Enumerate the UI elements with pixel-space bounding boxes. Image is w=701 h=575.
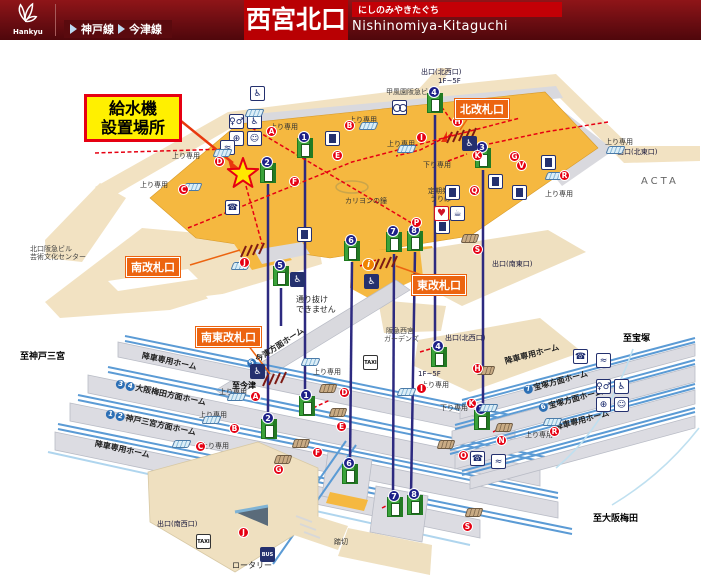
stair-letter-A: A [250, 391, 261, 402]
stair-letter-D: D [214, 156, 225, 167]
tm-icon [488, 174, 503, 189]
wheelchair-icon: ♿ [614, 379, 629, 394]
elevator-number: 7 [387, 225, 399, 237]
accpole-icon: ♿ [250, 86, 265, 101]
platform-label: 34大阪梅田方面ホーム [115, 378, 207, 408]
stair-letter-V: V [516, 160, 527, 171]
platform-name: 降車専用ホーム [504, 342, 561, 367]
map-label: 1F~5F [438, 77, 461, 85]
stair-letter-Q: Q [469, 185, 480, 196]
phone-icon: ☎ [470, 451, 485, 466]
widegate-icon: ♿ [462, 136, 477, 151]
elevator-number: 1 [298, 131, 310, 143]
baby-icon: ☺ [614, 397, 629, 412]
line-names: 神戸線 今津線 [64, 20, 172, 38]
map-label: 下り専用 [440, 403, 468, 413]
phone-icon: ☎ [225, 200, 240, 215]
station-title-romaji: Nishinomiya-Kitaguchi [352, 19, 562, 34]
gate-label-southeast: 南東改札口 [196, 327, 261, 347]
callout-line1: 給水機 [87, 99, 179, 118]
stairs-icon [319, 384, 338, 393]
info-icon: i [362, 258, 375, 271]
brand-name: Hankyu [13, 28, 43, 36]
esc-icon [212, 149, 232, 157]
elevator-number: 6 [343, 457, 355, 469]
map-label: 出口(南東口) [492, 259, 532, 269]
station-title-kana: にしのみやきたぐち [352, 2, 562, 17]
elevator-marker: 7 [386, 232, 402, 252]
elevator-marker: 1 [297, 138, 313, 158]
line-arrow-icon [70, 24, 77, 34]
elevator-marker: 1 [299, 396, 315, 416]
tm-icon [541, 155, 556, 170]
elevator-number: 8 [408, 488, 420, 500]
elevator-number: 6 [345, 234, 357, 246]
stairs-icon [292, 439, 311, 448]
elevator-marker: 6 [342, 464, 358, 484]
stairs-icon [465, 508, 484, 517]
esc-icon [226, 393, 246, 401]
map-label: 下り専用 [423, 160, 451, 170]
stairs-icon [437, 440, 456, 449]
stair-letter-C: C [178, 184, 189, 195]
stair-letter-E: E [336, 421, 347, 432]
platform-name: 大阪梅田方面ホーム [134, 382, 206, 408]
stair-letter-F: F [289, 176, 300, 187]
stair-letter-A: A [266, 126, 277, 137]
stair-letter-B: B [229, 423, 240, 434]
map-label: ACTA [641, 176, 679, 187]
stair-letter-J: J [238, 527, 249, 538]
esc-icon [201, 416, 221, 424]
stair-letter-B: B [344, 120, 355, 131]
esc-icon [605, 146, 625, 154]
map-label: 至宝塚 [623, 331, 650, 344]
esc-icon [396, 388, 416, 396]
stair-letter-J: J [239, 257, 250, 268]
elevator-number: 7 [388, 490, 400, 502]
stair-letter-C: C [195, 441, 206, 452]
platform-name: 今津方面ホーム [253, 325, 306, 365]
stairs-icon [461, 234, 480, 243]
stairs-icon [274, 455, 293, 464]
esc-icon [542, 418, 562, 426]
tm-icon [512, 185, 527, 200]
stair-letter-F: F [312, 447, 323, 458]
map-label: 出口(北西口) [445, 333, 485, 343]
elevator-number: 1 [300, 389, 312, 401]
elevator-marker: 6 [344, 241, 360, 261]
stair-letter-N: N [496, 435, 507, 446]
tm-icon [325, 131, 340, 146]
toilet-icon: ♀♂ [229, 114, 244, 129]
stair-letter-S: S [472, 244, 483, 255]
map-label: カリヨンの鐘 [345, 196, 387, 206]
bus-icon: BUS [260, 547, 275, 562]
stair-letter-E: E [332, 150, 343, 161]
taxi-icon: TAXI [363, 355, 378, 370]
map-label: 上り専用 [172, 151, 200, 161]
widegate-icon: ♿ [290, 272, 305, 287]
phone-icon: ☎ [573, 349, 588, 364]
platform-name: 降車専用ホーム [141, 350, 198, 372]
map-label: ガーデンズ [384, 334, 419, 344]
header-divider [55, 4, 56, 36]
elevator-marker: 5 [273, 266, 289, 286]
widegate-icon: ♿ [364, 274, 379, 289]
station-map-page: Hankyu 神戸線 今津線 西宮北口 にしのみやきたぐち Nishinomiy… [0, 0, 701, 575]
line-name-kobe: 神戸線 [81, 21, 114, 37]
map-label: 踏切 [334, 537, 348, 547]
stair-letter-R: R [549, 426, 560, 437]
elevator-number: 4 [428, 86, 440, 98]
map-overlay: 出口(北西口)1F~5F甲風園阪急ビル出口(北東口)ACTA北口阪急ビル芸術文化… [0, 0, 701, 575]
elevator-marker: 3 [474, 410, 490, 430]
map-label: 1F~5F [418, 370, 441, 378]
stair-letter-R: R [559, 170, 570, 181]
elevator-number: 5 [274, 259, 286, 271]
platform-label: 降車専用ホーム [141, 350, 198, 372]
baby-icon: ☺ [247, 131, 262, 146]
stairs-icon [495, 423, 514, 432]
map-label: 上り専用 [140, 180, 168, 190]
esc-icon [300, 358, 320, 366]
ostomate-icon: ⊕ [596, 397, 611, 412]
elevator-number: 2 [261, 156, 273, 168]
stair-letter-I: I [416, 132, 427, 143]
map-label: 出口(南西口) [157, 519, 197, 529]
stair-letter-O: O [458, 450, 469, 461]
stair-letter-S: S [462, 521, 473, 532]
stair-letter-G: G [273, 464, 284, 475]
esc-icon [171, 440, 191, 448]
stair-letter-I: I [416, 383, 427, 394]
gate-label-east: 東改札口 [412, 275, 466, 295]
elevator-number: 2 [262, 412, 274, 424]
map-label: 芸術文化センター [30, 252, 86, 262]
platform-name: 降車専用ホーム [94, 438, 151, 460]
header: Hankyu 神戸線 今津線 西宮北口 にしのみやきたぐち Nishinomiy… [0, 0, 701, 40]
gate-label-north: 北改札口 [455, 99, 509, 119]
elevator-marker: 7 [387, 497, 403, 517]
elevator-number: 4 [432, 340, 444, 352]
tm-icon [445, 185, 460, 200]
map-label: 至神戸三宮 [20, 349, 65, 362]
widegate-icon: ♿ [250, 364, 265, 379]
esc-icon [396, 145, 416, 153]
elevator-marker: 2 [261, 419, 277, 439]
elevator-marker: 8 [407, 231, 423, 251]
stair-letter-K: K [466, 398, 477, 409]
elevator-marker: 2 [260, 163, 276, 183]
station-title: 西宮北口 [244, 0, 348, 40]
tm-icon [297, 227, 312, 242]
map-label: 出口(北西口) [421, 67, 461, 77]
esc-icon [478, 404, 498, 412]
stair-letter-H: H [472, 363, 483, 374]
track-number: 1 [105, 409, 116, 420]
station-title-sub: にしのみやきたぐち Nishinomiya-Kitaguchi [352, 2, 562, 34]
water-dispenser-callout: 給水機 設置場所 [84, 94, 182, 142]
stairs-icon [329, 408, 348, 417]
elevator-marker: 4 [427, 93, 443, 113]
platform-label: 6宝塚方面ホーム [538, 386, 604, 414]
vend-icon: ☕ [450, 206, 465, 221]
platform-label: 12神戸三宮方面ホーム [105, 408, 197, 438]
esc-icon [358, 122, 378, 130]
map-label: 至大阪梅田 [593, 511, 638, 524]
elevator-marker: 8 [407, 495, 423, 515]
stair-letter-K: K [472, 150, 483, 161]
stair-letter-D: D [339, 387, 350, 398]
aed-icon: ♥ [434, 206, 449, 221]
tm-icon [435, 219, 450, 234]
gate-label-south: 南改札口 [126, 257, 180, 277]
map-label: 上り専用 [545, 189, 573, 199]
taxi-icon: TAXI [196, 534, 211, 549]
water-icon: ≈ [596, 353, 611, 368]
line-name-imazu: 今津線 [129, 21, 162, 37]
water-icon: ≈ [491, 454, 506, 469]
platform-name: 宝塚方面ホーム [532, 368, 589, 393]
bike-icon [392, 100, 407, 115]
callout-line2: 設置場所 [87, 118, 179, 137]
map-label: 上り専用 [313, 367, 341, 377]
elevator-marker: 4 [431, 347, 447, 367]
stair-letter-P: P [411, 217, 422, 228]
platform-name: 神戸三宮方面ホーム [124, 412, 196, 438]
esc-icon [244, 109, 264, 117]
line-arrow-icon [118, 24, 125, 34]
map-label: できません [296, 304, 336, 315]
toilet-icon: ♀♂ [596, 379, 611, 394]
track-number: 3 [115, 379, 126, 390]
platform-label: 降車専用ホーム [504, 342, 561, 367]
platform-label: 降車専用ホーム [94, 438, 151, 460]
hankyu-logo-icon [8, 1, 42, 31]
